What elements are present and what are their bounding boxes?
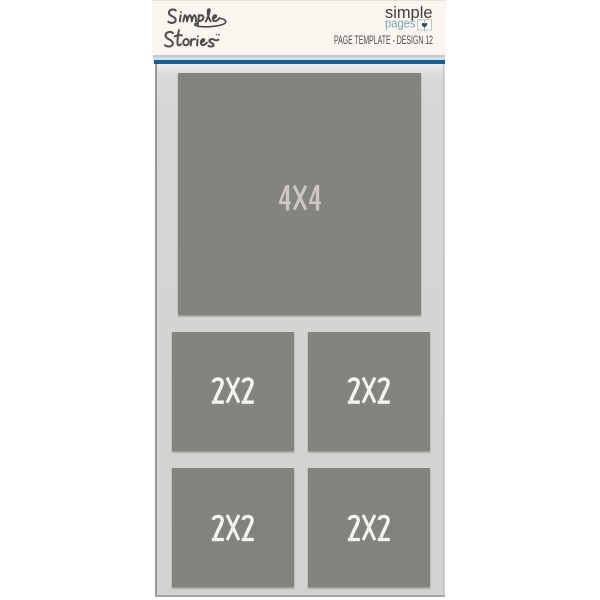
svg-text:PAGE TEMPLATE - DESIGN 12: PAGE TEMPLATE - DESIGN 12 [334, 35, 433, 47]
svg-text:pages: pages [385, 16, 416, 31]
